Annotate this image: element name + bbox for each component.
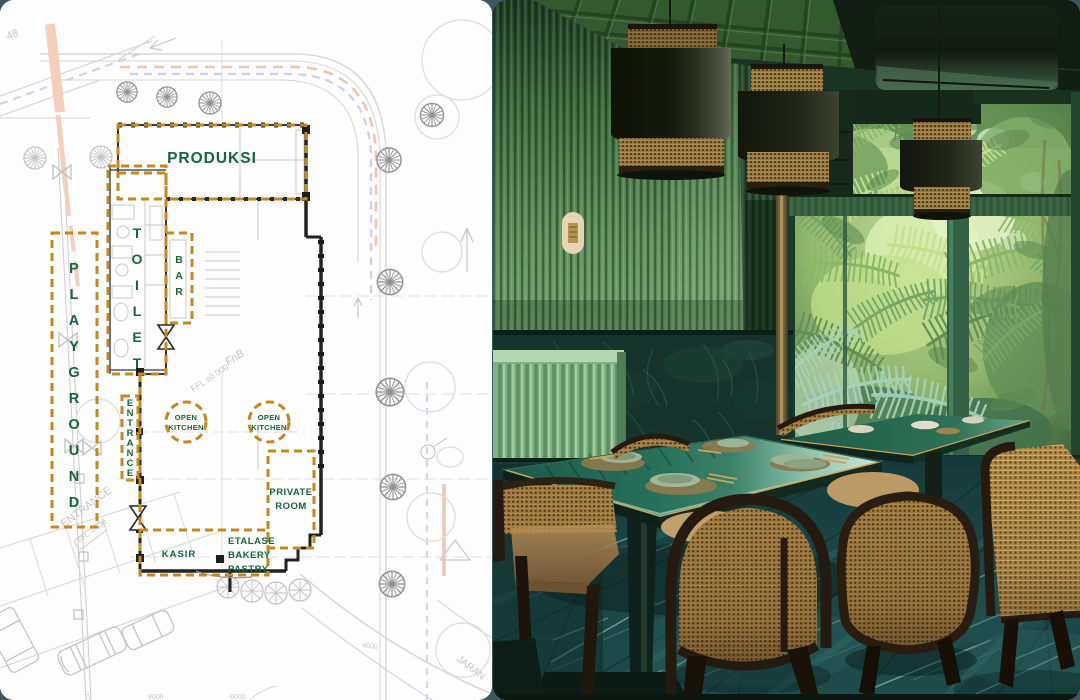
svg-text:E: E xyxy=(132,329,141,345)
svg-text:BAKERY: BAKERY xyxy=(228,550,271,561)
svg-text:A: A xyxy=(175,270,183,282)
svg-text:R: R xyxy=(175,286,183,298)
svg-text:O: O xyxy=(132,251,143,267)
svg-text:KASIR: KASIR xyxy=(162,549,197,560)
svg-text:ETALASE: ETALASE xyxy=(228,536,275,547)
svg-text:6000: 6000 xyxy=(230,694,246,700)
svg-text:A: A xyxy=(69,313,80,329)
svg-text:T: T xyxy=(133,225,142,241)
svg-text:KITCHEN: KITCHEN xyxy=(168,423,203,432)
svg-text:ROOM: ROOM xyxy=(275,501,307,512)
svg-text:8000: 8000 xyxy=(148,694,164,700)
svg-text:N: N xyxy=(69,469,79,485)
svg-text:I: I xyxy=(135,277,139,293)
svg-text:R: R xyxy=(69,391,80,407)
svg-text:PASTRY: PASTRY xyxy=(228,564,269,575)
svg-text:P: P xyxy=(69,261,79,277)
svg-text:U: U xyxy=(69,443,79,459)
svg-text:E: E xyxy=(127,468,133,479)
svg-text:B: B xyxy=(175,254,183,266)
svg-text:L: L xyxy=(133,303,142,319)
svg-text:OPEN: OPEN xyxy=(175,413,197,422)
svg-text:D: D xyxy=(69,495,79,511)
svg-text:PRODUKSI: PRODUKSI xyxy=(167,150,257,167)
svg-text:OPEN: OPEN xyxy=(258,413,280,422)
svg-text:KITCHEN: KITCHEN xyxy=(251,423,286,432)
svg-text:T: T xyxy=(133,355,142,371)
svg-text:L: L xyxy=(70,287,79,303)
svg-text:PRIVATE: PRIVATE xyxy=(269,487,312,498)
svg-text:Y: Y xyxy=(69,339,79,355)
svg-text:O: O xyxy=(68,417,79,433)
svg-text:G: G xyxy=(68,365,79,381)
